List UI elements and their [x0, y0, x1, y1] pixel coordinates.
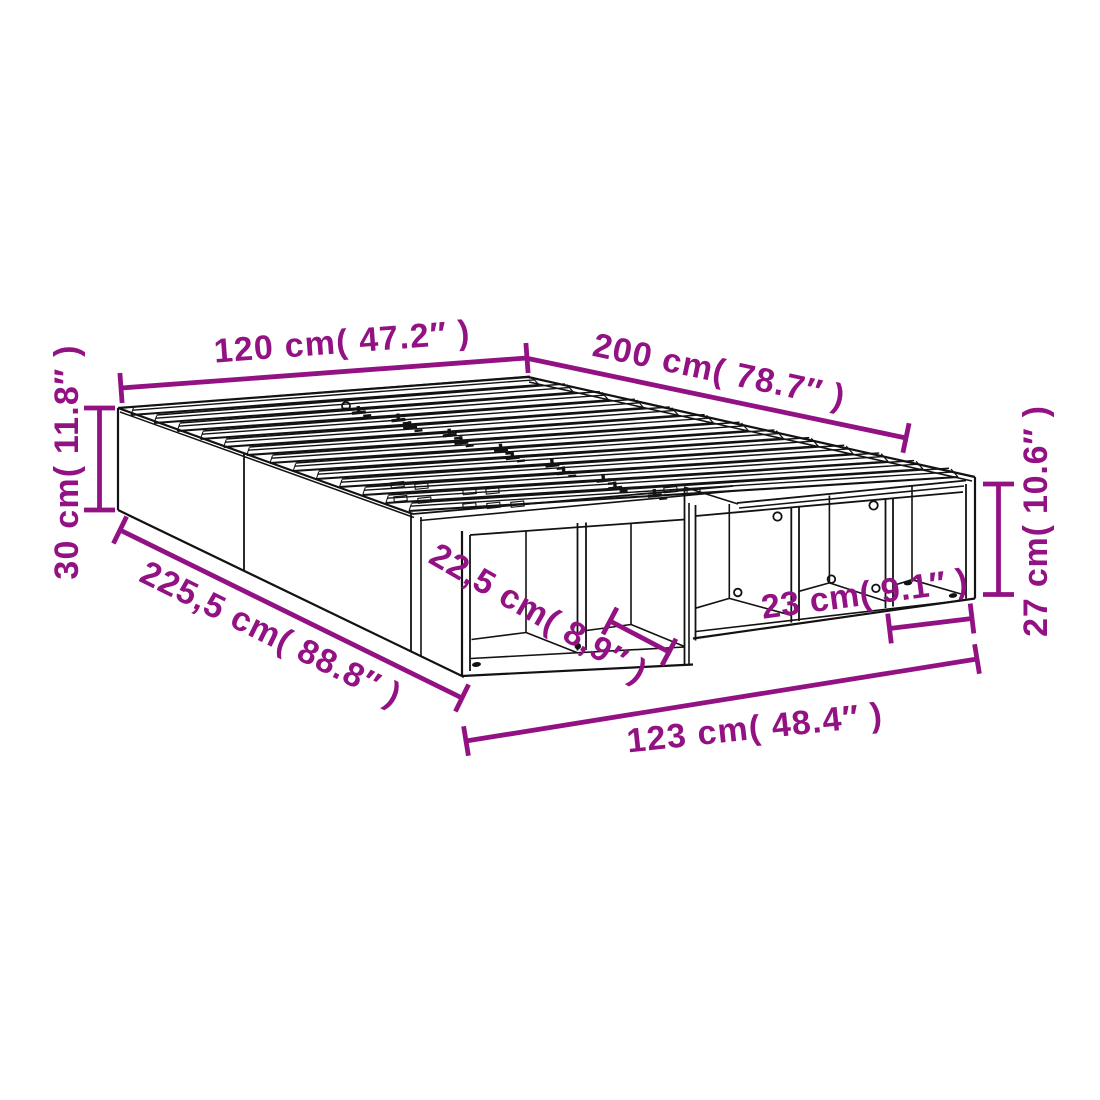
- svg-text:27 cm( 10.6″ ): 27 cm( 10.6″ ): [1017, 405, 1055, 637]
- svg-text:30 cm( 11.8″ ): 30 cm( 11.8″ ): [48, 344, 86, 579]
